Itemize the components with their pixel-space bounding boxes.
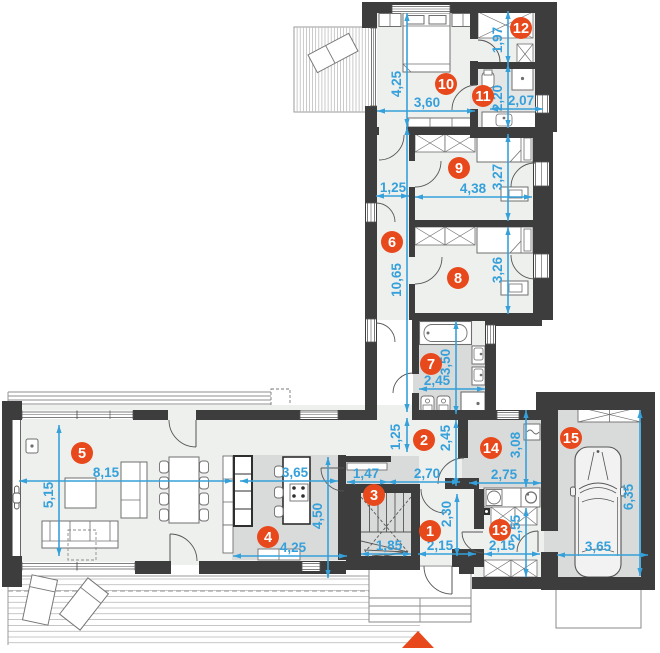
svg-text:4,25: 4,25 bbox=[389, 70, 404, 97]
svg-text:10: 10 bbox=[438, 77, 454, 93]
svg-text:15: 15 bbox=[563, 431, 579, 447]
svg-text:5,15: 5,15 bbox=[41, 481, 56, 508]
svg-text:4,38: 4,38 bbox=[460, 181, 487, 196]
svg-text:1: 1 bbox=[426, 524, 434, 540]
svg-text:14: 14 bbox=[483, 441, 499, 457]
svg-text:7: 7 bbox=[427, 357, 435, 373]
svg-text:5: 5 bbox=[78, 446, 86, 462]
svg-text:8,15: 8,15 bbox=[93, 465, 120, 480]
svg-text:1,25: 1,25 bbox=[380, 180, 407, 195]
svg-text:4,25: 4,25 bbox=[280, 540, 307, 555]
svg-text:2,75: 2,75 bbox=[491, 467, 518, 482]
svg-text:4,50: 4,50 bbox=[310, 503, 325, 529]
svg-text:12: 12 bbox=[513, 21, 529, 37]
svg-text:13: 13 bbox=[492, 523, 508, 539]
svg-text:3: 3 bbox=[370, 488, 378, 504]
svg-text:1,47: 1,47 bbox=[353, 466, 379, 481]
svg-text:2,30: 2,30 bbox=[439, 501, 454, 527]
svg-text:10,65: 10,65 bbox=[389, 263, 404, 297]
svg-text:2,45: 2,45 bbox=[424, 373, 451, 388]
svg-text:1,85: 1,85 bbox=[376, 538, 403, 553]
svg-text:4: 4 bbox=[264, 530, 272, 546]
svg-text:3,65: 3,65 bbox=[585, 539, 612, 554]
svg-text:2,70: 2,70 bbox=[414, 466, 440, 481]
svg-text:6: 6 bbox=[388, 235, 396, 251]
svg-text:6,35: 6,35 bbox=[621, 483, 636, 510]
svg-text:1,97: 1,97 bbox=[490, 27, 505, 53]
svg-text:3,26: 3,26 bbox=[490, 256, 505, 283]
svg-text:8: 8 bbox=[454, 271, 462, 287]
svg-text:9: 9 bbox=[455, 161, 463, 177]
svg-text:3,08: 3,08 bbox=[508, 431, 523, 458]
svg-text:3,60: 3,60 bbox=[414, 95, 440, 110]
svg-text:2,45: 2,45 bbox=[438, 424, 453, 451]
svg-text:3,65: 3,65 bbox=[282, 465, 309, 480]
svg-text:2,07: 2,07 bbox=[508, 93, 534, 108]
svg-text:11: 11 bbox=[475, 89, 490, 105]
svg-text:1,25: 1,25 bbox=[388, 423, 403, 450]
svg-text:3,27: 3,27 bbox=[490, 164, 505, 190]
svg-text:2: 2 bbox=[420, 433, 428, 449]
